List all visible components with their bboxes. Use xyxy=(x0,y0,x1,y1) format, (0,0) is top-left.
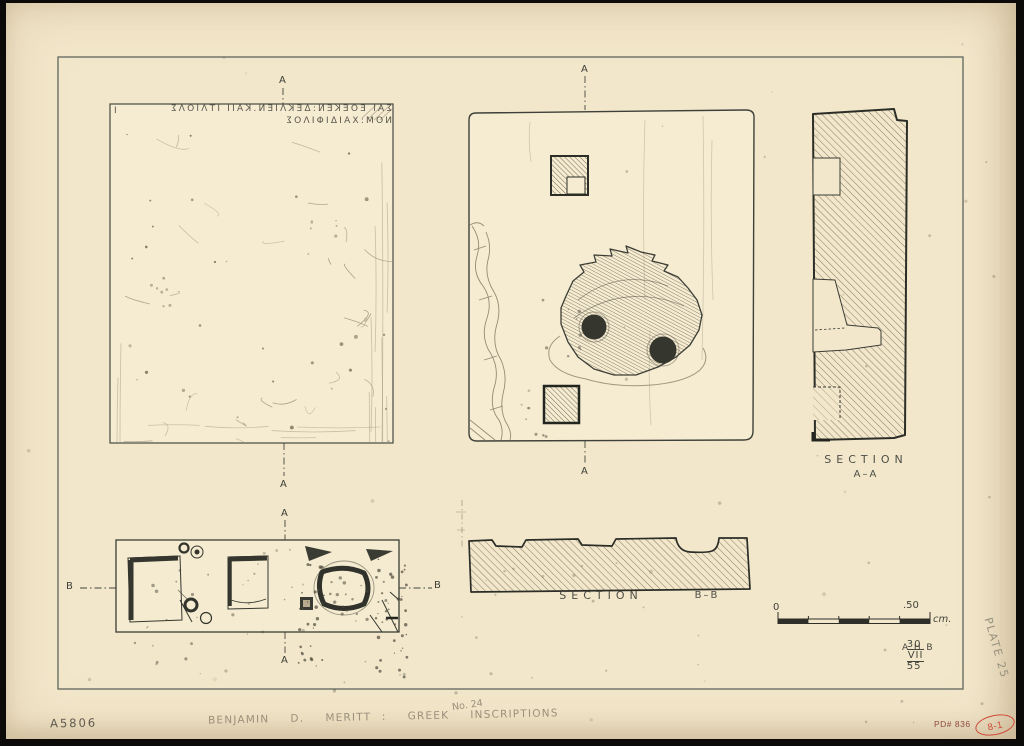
marker-a-bottom-left: A xyxy=(280,479,287,490)
date-year: 55 xyxy=(907,661,922,672)
pd-number: PD# 836 xyxy=(934,719,971,729)
scale-unit-label: cm. xyxy=(933,614,951,625)
negative-number: A5806 xyxy=(50,716,97,731)
scale-end-label: .50 xyxy=(903,600,919,611)
section-b-title: SECTION xyxy=(546,589,656,602)
section-b-subtitle: B–B xyxy=(682,590,732,601)
marker-b-plan-right: B xyxy=(434,580,441,591)
inscription-line-2: ΝΟΜ:ΧΑΙΔΙΦΙΛΟΣ xyxy=(252,116,392,126)
inscription-line-1: ΣΑΙ ΕΟΕΚΕΝ:ΔΕΚΛΙΕΝ.ΚΑΙΙ ΙΤΛΙΟΛΣ xyxy=(126,104,392,114)
top-face-panel xyxy=(469,76,995,723)
draughtsman-initials: A.H.B xyxy=(902,643,934,653)
section-a-subtitle: A–A xyxy=(806,469,926,480)
drawing-date: 30 VII 55 xyxy=(890,628,924,683)
marker-a-plan-top: A xyxy=(281,508,288,519)
scale-start-label: 0 xyxy=(773,602,779,613)
section-a-title: SECTION xyxy=(806,453,926,466)
section-b-b-drawing xyxy=(456,500,750,592)
scanned-plate: Ι ΣΑΙ ΕΟΕΚΕΝ:ΔΕΚΛΙΕΝ.ΚΑΙΙ ΙΤΛΙΟΛΣ ΝΟΜ:ΧΑ… xyxy=(0,0,1024,746)
section-a-a-drawing xyxy=(813,109,907,440)
lower-dowel-hole xyxy=(544,386,579,423)
marker-a-top-left: A xyxy=(279,75,286,86)
marker-a-bottom-center: A xyxy=(581,466,588,477)
marker-a-plan-bottom: A xyxy=(281,655,288,666)
marker-a-top-center: A xyxy=(581,64,588,75)
marker-b-plan-left: B xyxy=(66,581,73,592)
inscription-lead-mark: Ι xyxy=(114,106,119,116)
red-tag-label: 8-1 xyxy=(987,720,1004,734)
scale-bar xyxy=(778,612,930,624)
upper-dowel-hole xyxy=(551,156,588,195)
